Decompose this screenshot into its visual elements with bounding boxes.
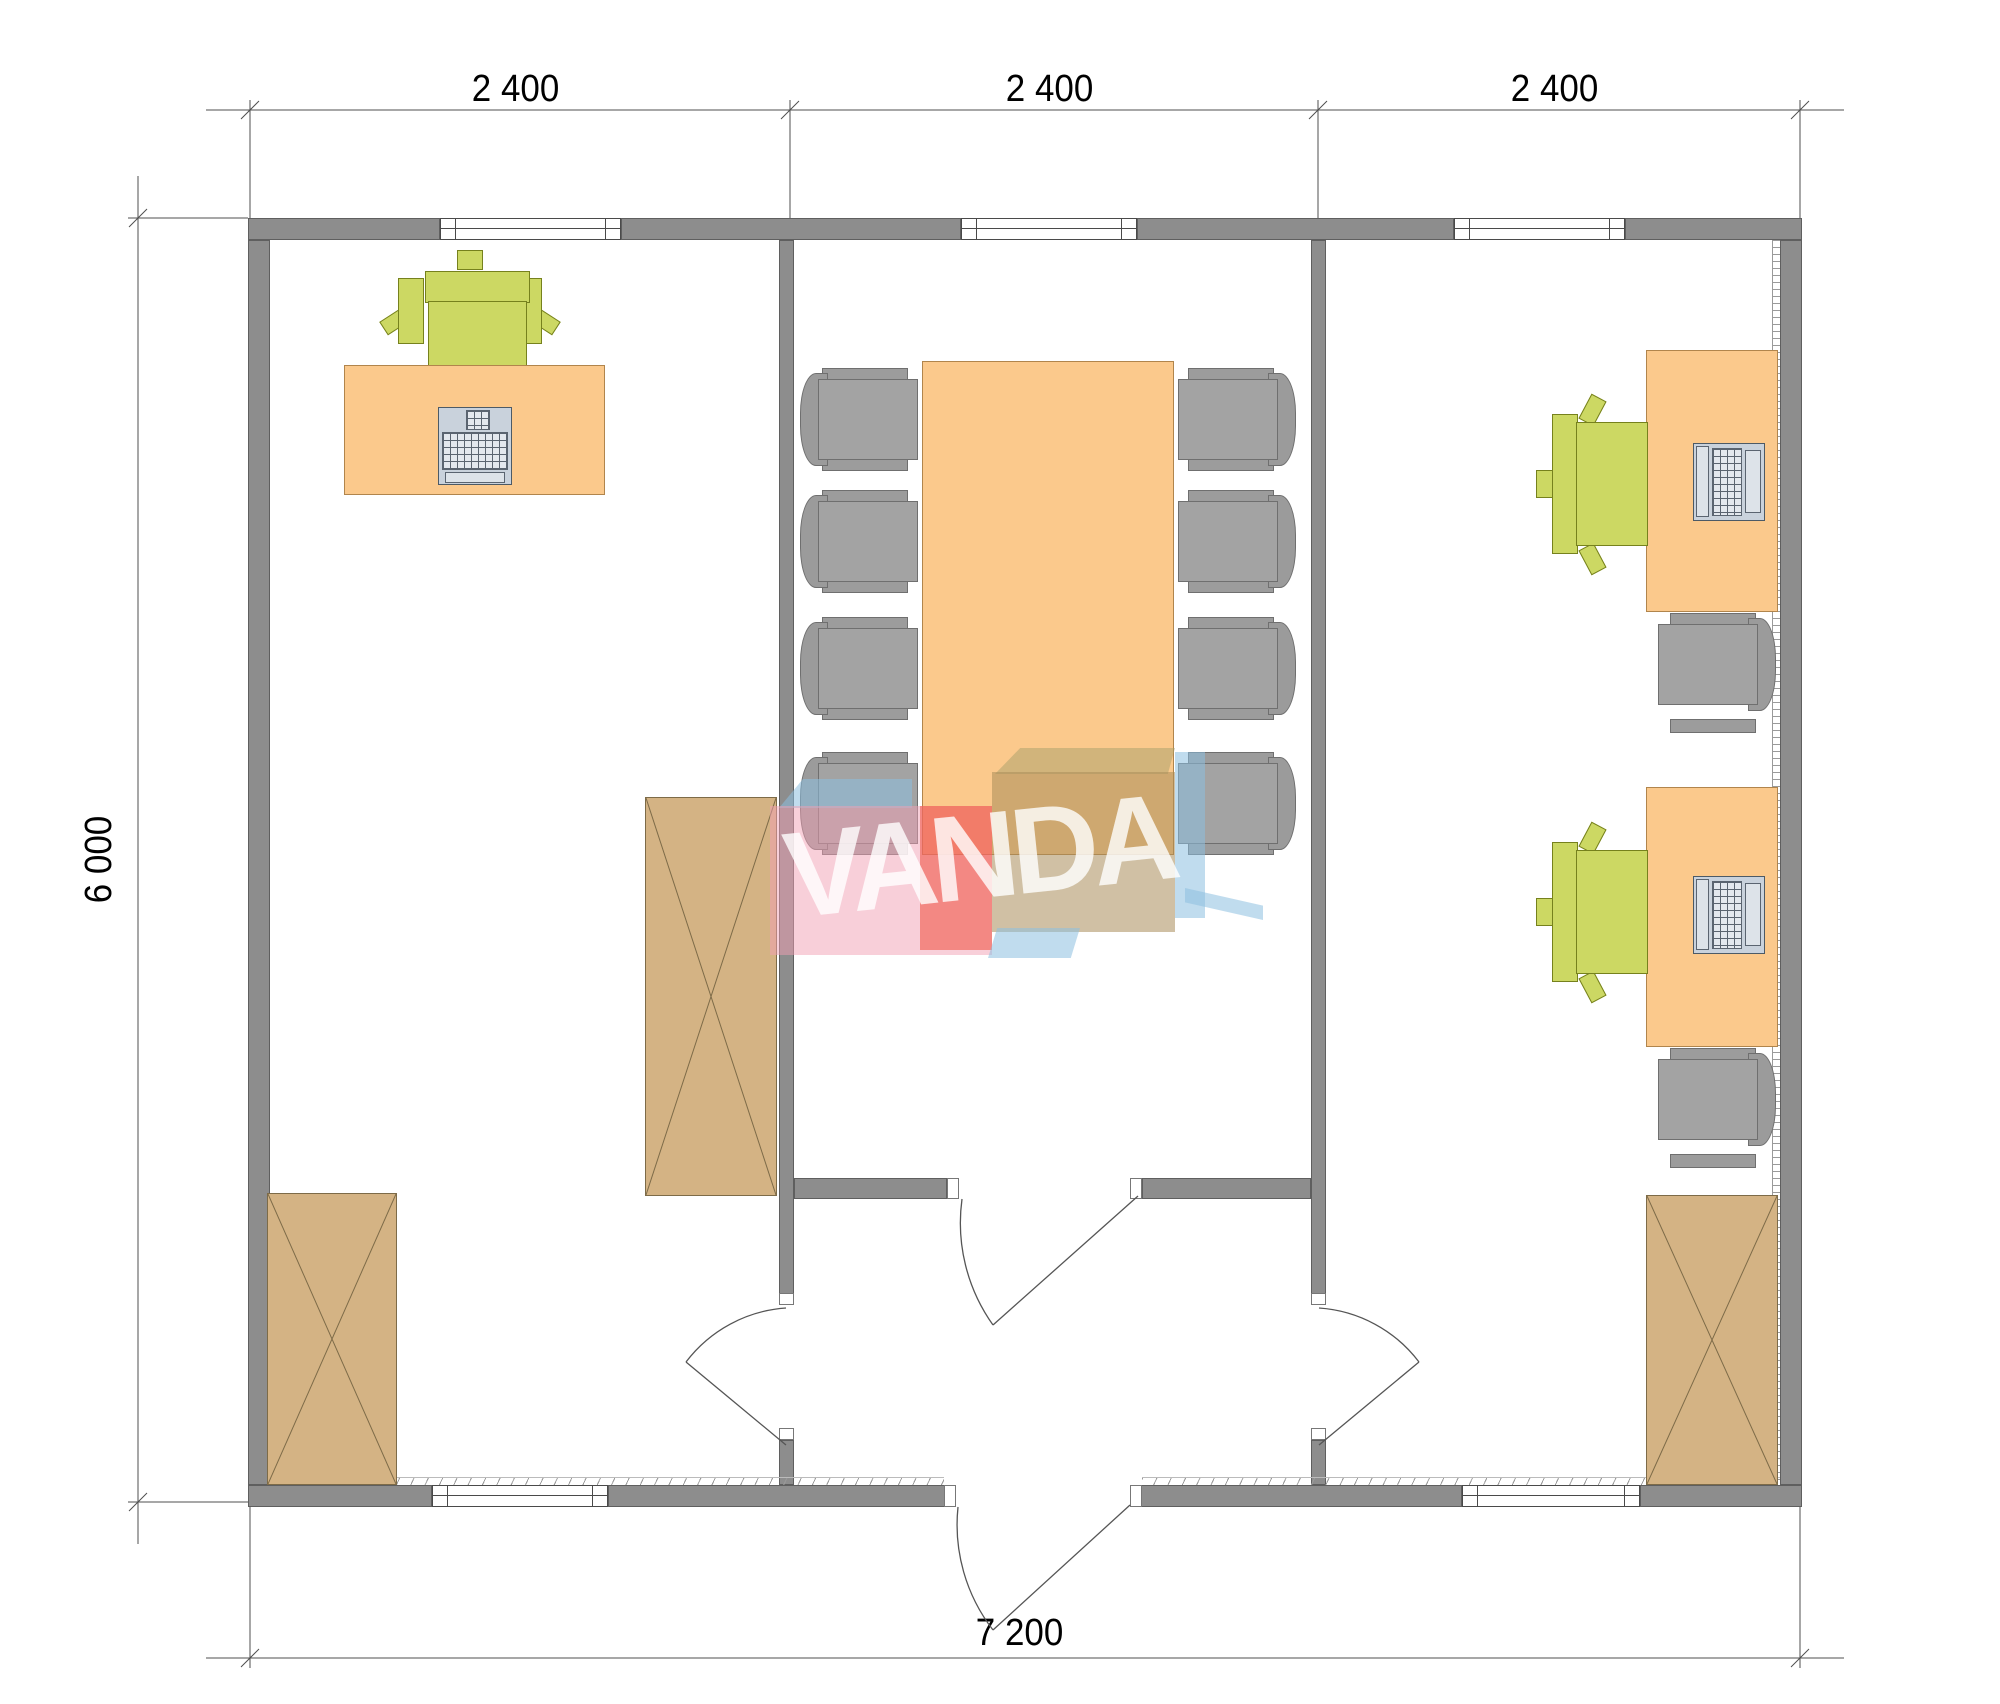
logo-shape-blue-bottom [988, 928, 1080, 958]
door-leaf-right-office [1319, 1362, 1419, 1445]
door-swing-arc-left-office [686, 1308, 786, 1362]
door-swing-arc-right-office [1319, 1308, 1419, 1362]
floor-plan: 2 400 2 400 2 400 6 000 7 200 [0, 0, 2000, 1704]
door-leaf-left-office [686, 1362, 786, 1445]
door-swing-arc-meeting-room [960, 1199, 993, 1325]
door-leaf-meeting-room [993, 1196, 1138, 1325]
door-swing-arc-entrance [957, 1507, 993, 1630]
door-leaf-entrance [993, 1505, 1130, 1630]
